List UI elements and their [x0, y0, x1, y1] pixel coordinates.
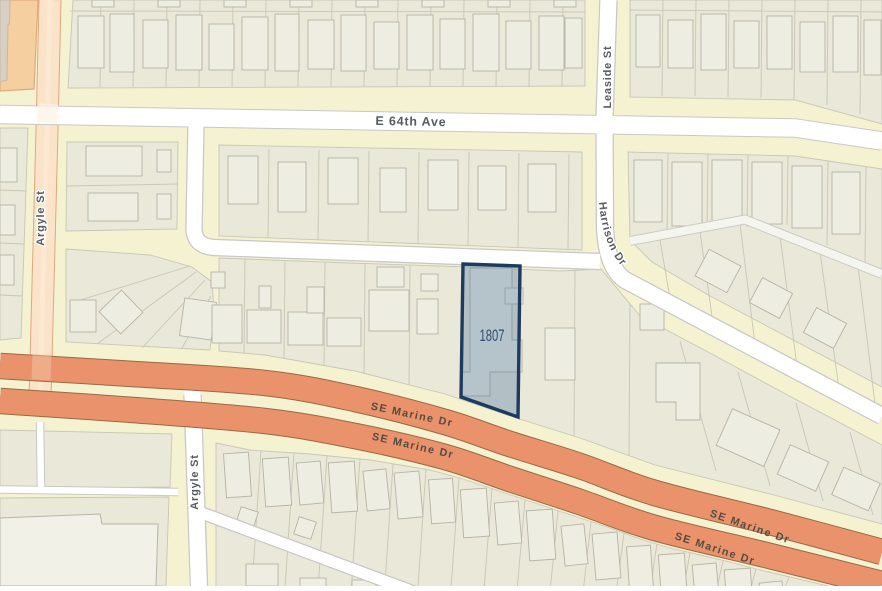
svg-text:Leaside St: Leaside St: [602, 45, 614, 108]
svg-text:E 64th Ave: E 64th Ave: [375, 114, 446, 129]
svg-text:Argyle St: Argyle St: [189, 454, 201, 510]
svg-text:1807: 1807: [480, 327, 505, 345]
svg-text:Argyle St: Argyle St: [35, 190, 47, 246]
